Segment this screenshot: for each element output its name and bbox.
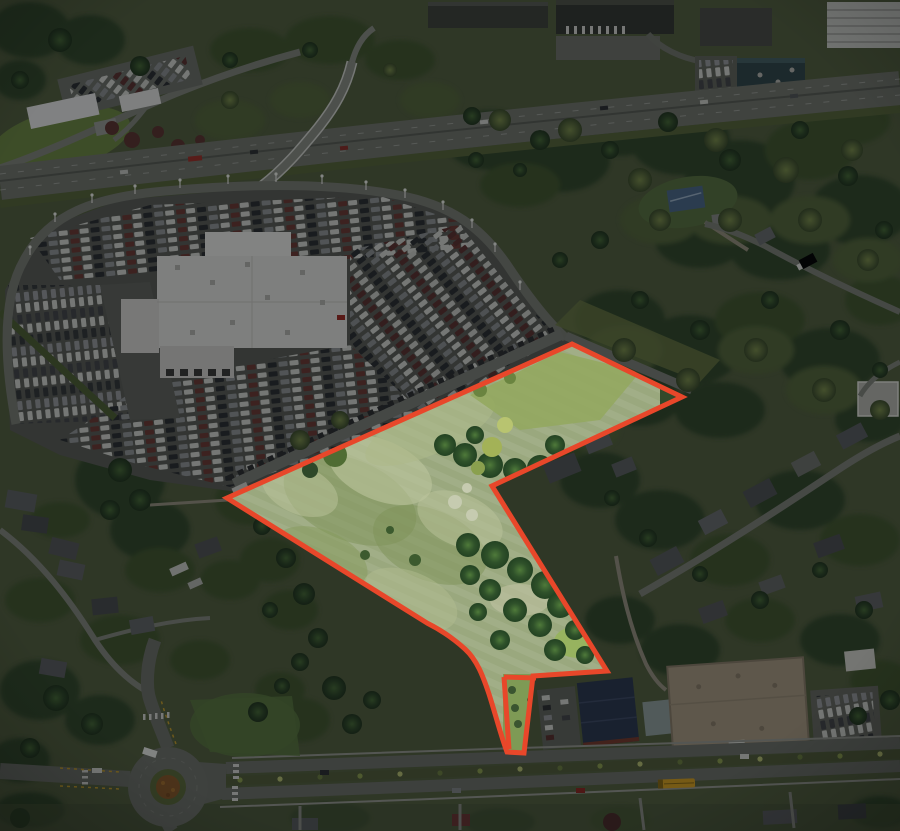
boundary-access-top (504, 677, 536, 678)
aerial-photo (0, 0, 900, 831)
aerial-photo-canvas (0, 0, 900, 831)
vignette (0, 0, 900, 831)
